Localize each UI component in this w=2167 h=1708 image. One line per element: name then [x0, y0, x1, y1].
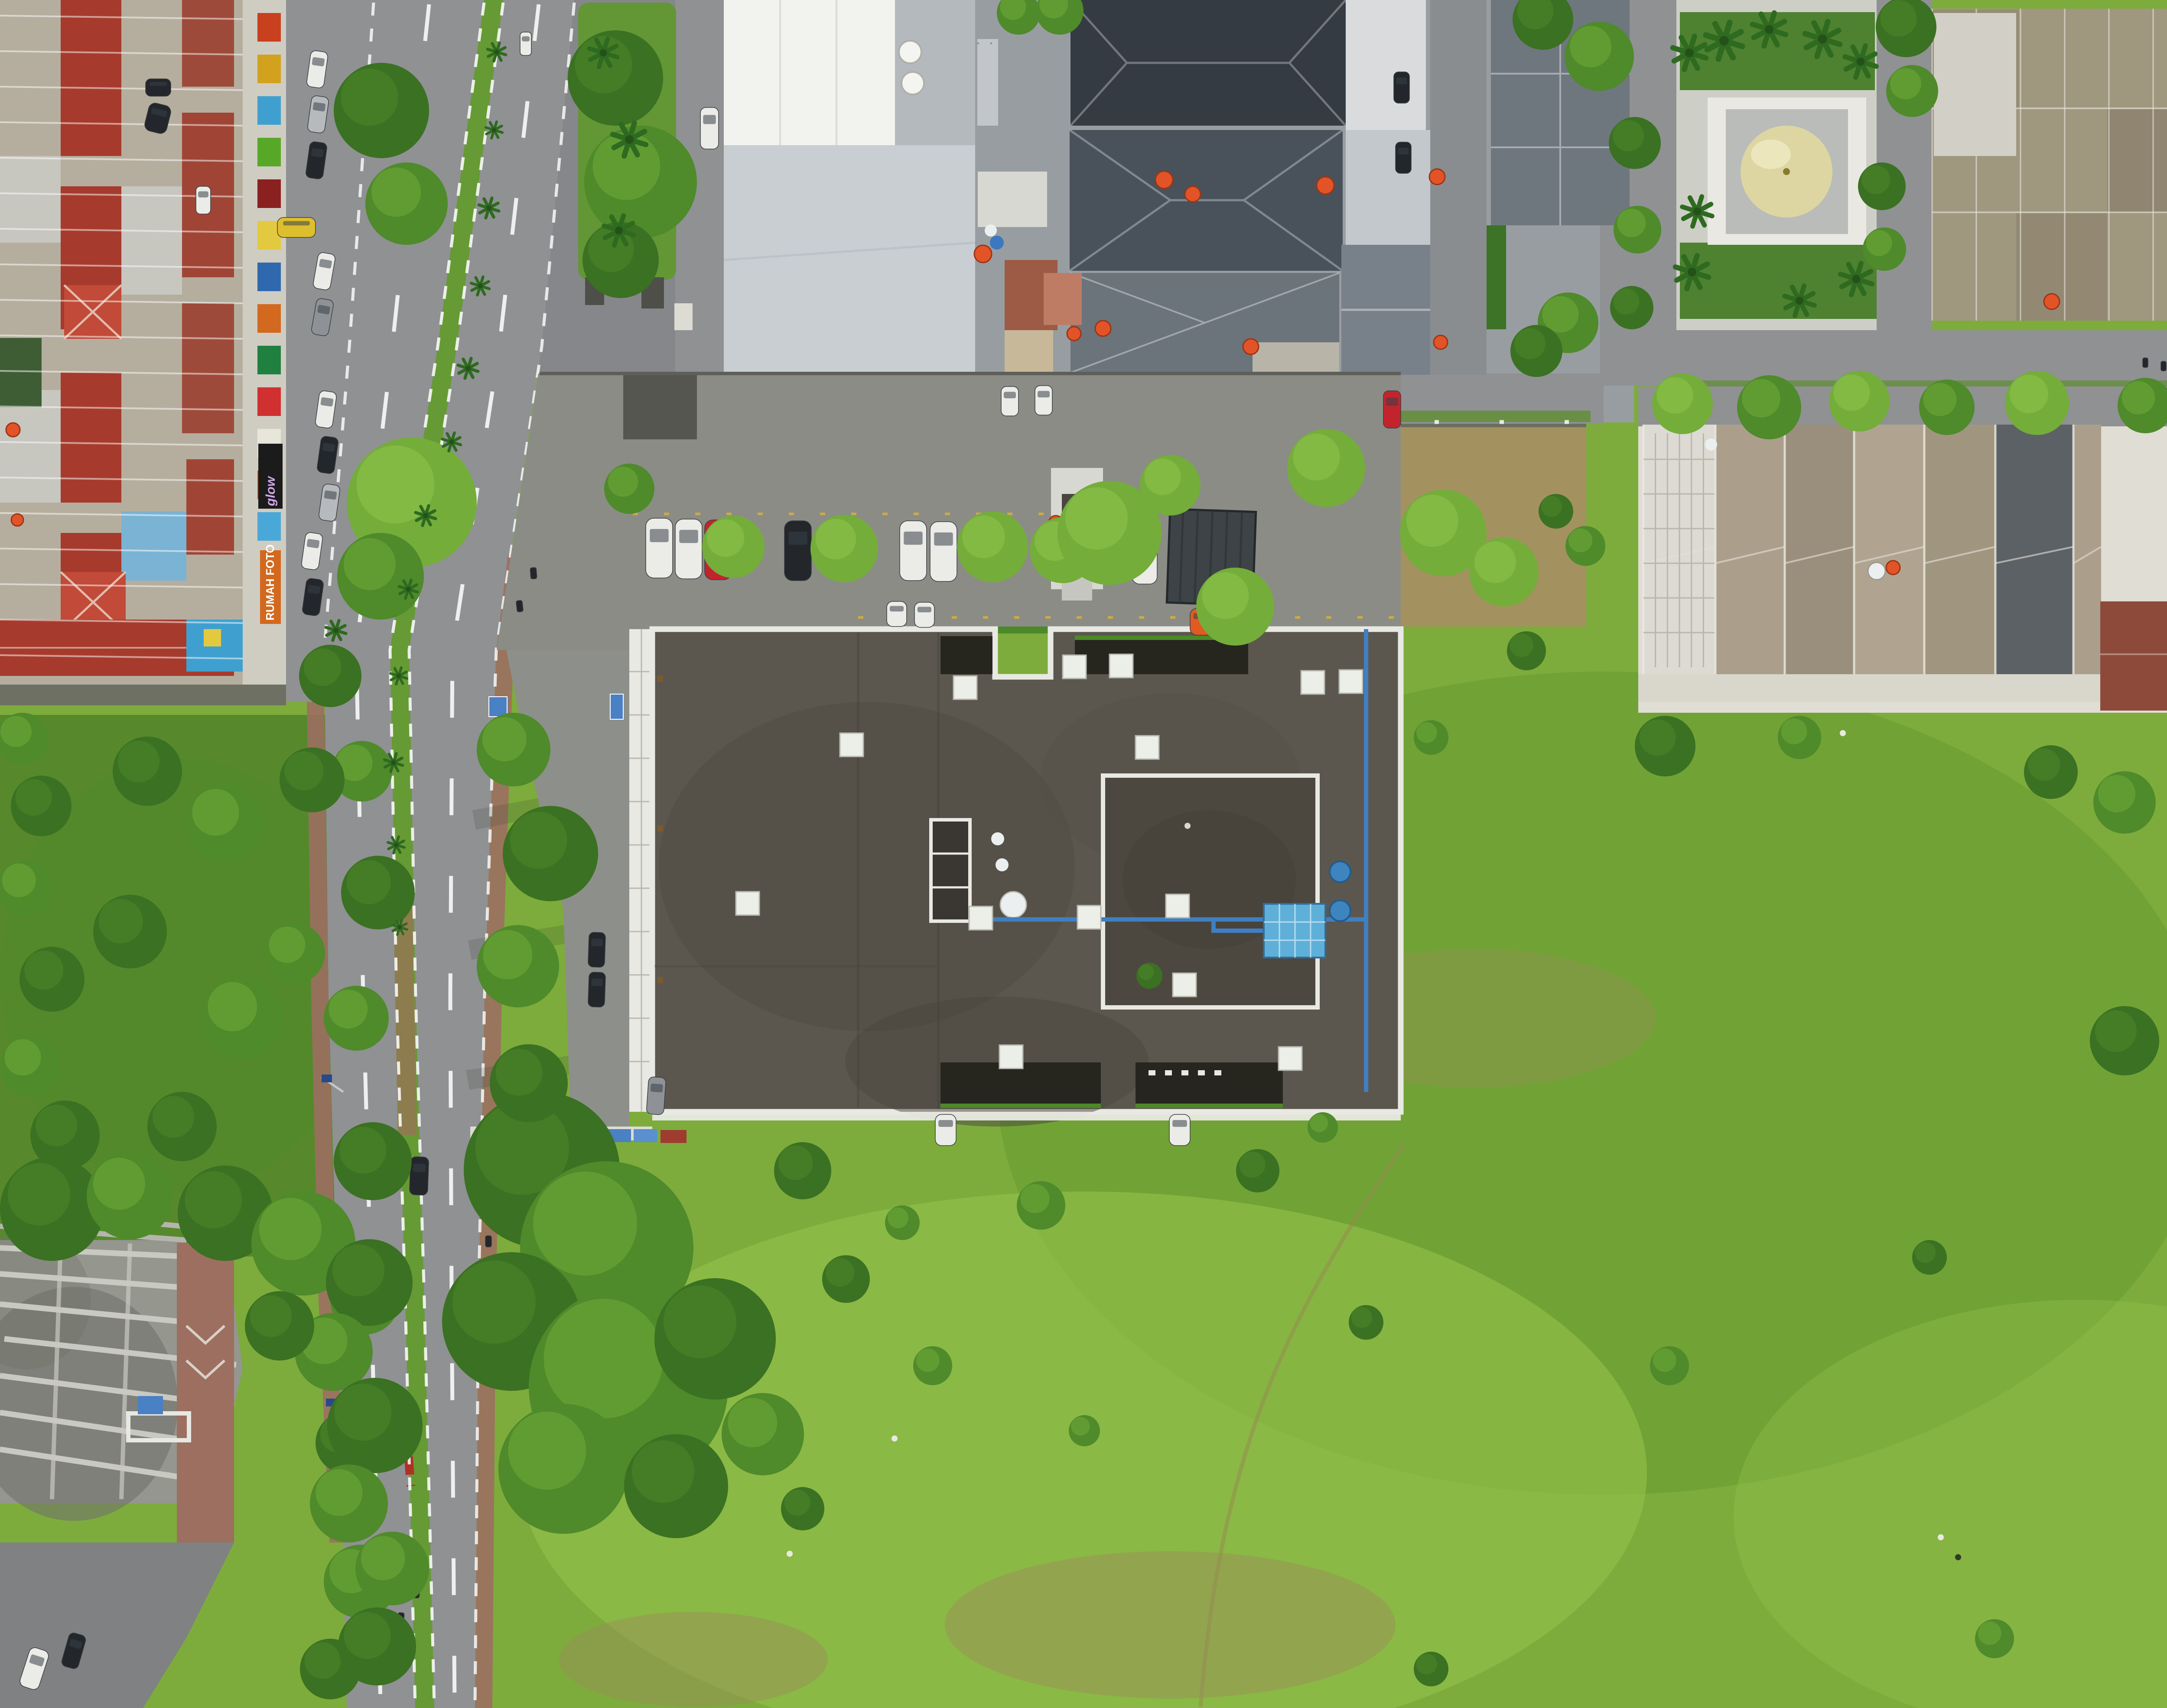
taxi — [277, 218, 316, 237]
upper-right-houses — [1932, 9, 2167, 321]
field-speck — [787, 1551, 793, 1557]
car — [409, 1156, 429, 1195]
tree — [1565, 22, 1634, 91]
roof-hatch — [1166, 894, 1189, 918]
roof-hatch — [953, 676, 977, 699]
dome-highlight — [1751, 140, 1791, 169]
parked-car — [930, 522, 957, 581]
shophouse-block: glow RUMAH FOTO — [0, 0, 286, 705]
tree — [1975, 1619, 2014, 1658]
tree — [1017, 1181, 1065, 1230]
white-flat-roof — [724, 0, 895, 145]
tree — [1469, 537, 1539, 607]
tree — [355, 1532, 429, 1605]
parked-car — [146, 79, 171, 96]
van — [700, 107, 719, 149]
boundary-wall — [0, 685, 286, 705]
dry-grass-patch — [945, 1551, 1396, 1698]
shop-green-roof — [0, 338, 42, 407]
diamond-pattern-roof — [1253, 342, 1339, 376]
aerial-photo-stage: glow RUMAH FOTO — [0, 0, 2167, 1708]
water-tank-orange — [2044, 294, 2060, 309]
estate-street-right — [1676, 330, 2167, 386]
shop-signboard — [257, 304, 281, 333]
tree — [1886, 65, 1938, 117]
parked-car — [1396, 142, 1411, 173]
tree — [1650, 1346, 1689, 1385]
solar-panel-light — [322, 1075, 332, 1082]
row-house — [1715, 425, 1785, 674]
tree — [1196, 568, 1274, 646]
tree — [477, 713, 550, 786]
tree — [186, 784, 264, 862]
water-tank-orange — [1243, 339, 1259, 354]
water-tank-orange — [1185, 186, 1201, 202]
tree — [1539, 494, 1573, 529]
roof-hatch — [969, 906, 992, 930]
parked-car — [1394, 72, 1409, 103]
tree — [299, 645, 361, 707]
roof-hatch — [736, 892, 759, 915]
skylight — [931, 820, 970, 921]
water-tank-orange — [1429, 169, 1445, 185]
van — [520, 32, 531, 55]
parked-van — [1169, 1114, 1190, 1146]
water-tank-orange — [11, 514, 23, 526]
roof-hatch — [840, 733, 863, 757]
shop-signboard — [257, 138, 281, 166]
driveway — [1430, 0, 1487, 375]
shop-red-roof — [61, 0, 121, 156]
shop-signboard — [257, 263, 281, 291]
roof-hatch — [1063, 655, 1086, 679]
parked-car — [675, 519, 702, 579]
satellite-dish — [985, 224, 997, 237]
white-roof-house — [1934, 13, 2016, 156]
satellite-dish — [1705, 438, 1717, 451]
house-roof-block — [2016, 213, 2107, 321]
parked-car — [646, 1077, 666, 1115]
shop-silver-roof — [121, 186, 182, 295]
tree — [113, 737, 182, 806]
parked-car — [784, 521, 811, 581]
guard-post-roof — [138, 1396, 163, 1414]
roof-stain — [659, 702, 1075, 1031]
row-house — [2073, 425, 2101, 674]
inner-courtyard — [940, 636, 992, 674]
motorbike — [530, 568, 537, 579]
tree — [1414, 720, 1448, 755]
motorbike — [2143, 358, 2148, 367]
tree — [1507, 631, 1546, 670]
motorbike — [516, 600, 524, 612]
parked-car — [914, 602, 934, 627]
shop-signboard — [257, 512, 281, 541]
brick-plaza — [177, 1243, 234, 1543]
parked-car — [1383, 391, 1401, 428]
mosque-lawn — [1680, 243, 1877, 319]
tree — [93, 895, 167, 968]
inner-courtyard — [1136, 1062, 1283, 1107]
inner-courtyard — [940, 1062, 1101, 1107]
tree — [1565, 526, 1605, 566]
tree — [1829, 371, 1890, 432]
tree — [810, 515, 878, 582]
white-flat-roof — [1346, 130, 1430, 245]
tree — [1652, 373, 1713, 434]
tree — [334, 1122, 412, 1200]
tree — [2093, 771, 2156, 834]
tree — [1858, 162, 1906, 210]
water-tank-orange — [1067, 327, 1081, 341]
tree — [1863, 227, 1906, 271]
blue-entrance-canopy — [610, 694, 623, 719]
tree — [147, 1092, 217, 1161]
tree — [2024, 745, 2078, 799]
corrugated-roof — [978, 172, 1047, 227]
shop-red-roof — [61, 373, 121, 503]
shop-signboard — [257, 96, 281, 125]
house-walls-band — [1638, 674, 2167, 702]
tree — [1614, 206, 1661, 253]
tree — [498, 1404, 628, 1534]
field-speck — [1184, 823, 1191, 829]
canopy-banner — [661, 1130, 687, 1143]
rooftop-ac-unit — [899, 41, 921, 63]
tree — [341, 856, 415, 929]
aerial-scene: glow RUMAH FOTO — [0, 0, 2167, 1708]
water-tank-orange — [1095, 321, 1111, 336]
blue-drum — [990, 236, 1004, 250]
tree — [0, 1157, 104, 1261]
tree — [280, 747, 345, 812]
layer-right-houses — [1643, 425, 2101, 674]
parked-car — [1035, 386, 1052, 415]
shop-signboard — [257, 13, 281, 42]
tree — [1510, 325, 1562, 377]
tree — [327, 1378, 423, 1473]
satellite-dish — [996, 858, 1009, 871]
tree — [0, 1036, 61, 1096]
tree — [774, 1142, 831, 1199]
redbrown-roof — [2100, 601, 2167, 711]
water-tank-orange — [1155, 171, 1173, 188]
motorbike — [485, 1236, 491, 1247]
shop-signboard — [257, 346, 281, 374]
motorbike — [2161, 361, 2166, 371]
tree — [1349, 1305, 1383, 1340]
shop-signboard — [257, 179, 281, 208]
roof-hatch — [1110, 654, 1133, 678]
tree — [1737, 375, 1801, 439]
tree — [1610, 286, 1653, 329]
roof-hatch — [1339, 670, 1363, 693]
water-tank-orange — [6, 423, 20, 437]
shop-red-roof — [186, 459, 234, 555]
tree — [2005, 371, 2069, 435]
tree — [1308, 1112, 1338, 1143]
shop-yellow-sign — [204, 629, 221, 646]
tree — [2090, 1006, 2159, 1075]
guard-booth — [674, 303, 693, 330]
tree — [957, 511, 1028, 582]
row-house — [1924, 425, 1995, 674]
tree — [1919, 380, 1975, 435]
roof-hatch — [1173, 973, 1196, 997]
rooftop-ladder — [977, 39, 998, 126]
garden-hedge — [1487, 225, 1506, 329]
roof-hatch — [1077, 906, 1101, 929]
tree — [0, 860, 54, 916]
shop-red-roof — [182, 303, 234, 433]
parked-car — [887, 601, 907, 627]
tree — [1609, 117, 1661, 169]
row-house — [1995, 425, 2073, 674]
glow-sign-text: glow — [264, 476, 278, 507]
white-flat-roof — [1346, 0, 1426, 130]
tree — [822, 1255, 870, 1303]
field-speck — [1840, 730, 1846, 736]
roof-hatch — [1136, 736, 1159, 759]
house-roof-block — [2107, 109, 2167, 212]
tree — [477, 925, 559, 1007]
tree — [781, 1487, 824, 1530]
lower-right-houses — [1638, 386, 2167, 713]
shop-red-hip-roof — [64, 285, 121, 339]
layer-banners — [606, 1129, 687, 1143]
tree — [310, 1464, 388, 1542]
roof-hatch — [1279, 1047, 1302, 1070]
shop-blue-roof — [121, 511, 186, 581]
shop-signboard — [257, 55, 281, 83]
tree — [490, 1044, 568, 1122]
tree — [722, 1393, 804, 1475]
dome-finial — [1783, 168, 1790, 175]
row-house — [1643, 425, 1715, 674]
tree — [702, 516, 765, 578]
tree — [1912, 1240, 1947, 1275]
tree — [326, 1239, 413, 1326]
tree — [1778, 716, 1821, 759]
field-speck — [1955, 1554, 1961, 1560]
roof-hatch — [1301, 671, 1324, 694]
salmon-roof — [1044, 273, 1082, 325]
tree — [1414, 1652, 1448, 1686]
tree — [324, 986, 389, 1051]
tree — [87, 1153, 173, 1239]
tree — [337, 533, 424, 620]
tree — [1287, 429, 1365, 507]
parked-van — [935, 1114, 956, 1146]
tree — [11, 776, 72, 836]
canopy-banner — [634, 1129, 657, 1142]
rumah-foto-text: RUMAH FOTO — [264, 544, 277, 620]
parked-car — [900, 521, 927, 581]
dry-grass-patch — [559, 1612, 828, 1707]
guard-shed-roof — [623, 375, 697, 439]
tree — [245, 1291, 314, 1361]
tree — [1140, 455, 1201, 516]
tree — [604, 464, 654, 514]
water-tank-orange — [1434, 335, 1448, 349]
row-house — [1854, 425, 1924, 674]
tree — [624, 1434, 728, 1538]
tree — [654, 1278, 776, 1400]
tree — [1136, 963, 1162, 989]
tree — [885, 1205, 920, 1240]
round-tank — [1330, 861, 1350, 882]
tree — [338, 1607, 416, 1685]
field-speck — [892, 1435, 898, 1442]
tree — [1635, 716, 1695, 776]
parked-car — [588, 972, 606, 1007]
tree — [20, 947, 85, 1012]
tree — [202, 977, 284, 1059]
satellite-dish — [991, 832, 1004, 845]
rooftop-ac-unit — [901, 72, 924, 94]
parked-car — [646, 518, 673, 578]
field-speck — [1938, 1534, 1944, 1540]
back-lane — [1638, 386, 2167, 426]
tree — [365, 162, 448, 245]
white-showroom-building — [724, 0, 998, 375]
pale-metal-roof — [724, 145, 975, 375]
tree — [334, 63, 429, 158]
tree — [503, 806, 598, 901]
tree — [1236, 1149, 1279, 1192]
tree — [1069, 1415, 1100, 1446]
satellite-dish-large — [1000, 892, 1026, 918]
satellite-dish — [1868, 562, 1885, 580]
tree — [264, 923, 325, 984]
parked-car — [196, 186, 211, 214]
shop-signboard — [257, 387, 281, 416]
row-house — [1785, 425, 1854, 674]
parked-car — [1001, 386, 1018, 416]
water-tank-orange — [1886, 561, 1900, 575]
water-tank-orange — [974, 245, 992, 263]
south-parapet-walk — [652, 1112, 1401, 1120]
blue-bus-shelter — [489, 697, 507, 717]
tree — [913, 1346, 952, 1385]
shop-red-roof — [182, 0, 234, 87]
parked-car — [588, 932, 606, 967]
water-tank-orange — [1317, 177, 1334, 194]
round-tank — [1330, 900, 1350, 921]
roof-hatch — [999, 1045, 1023, 1068]
